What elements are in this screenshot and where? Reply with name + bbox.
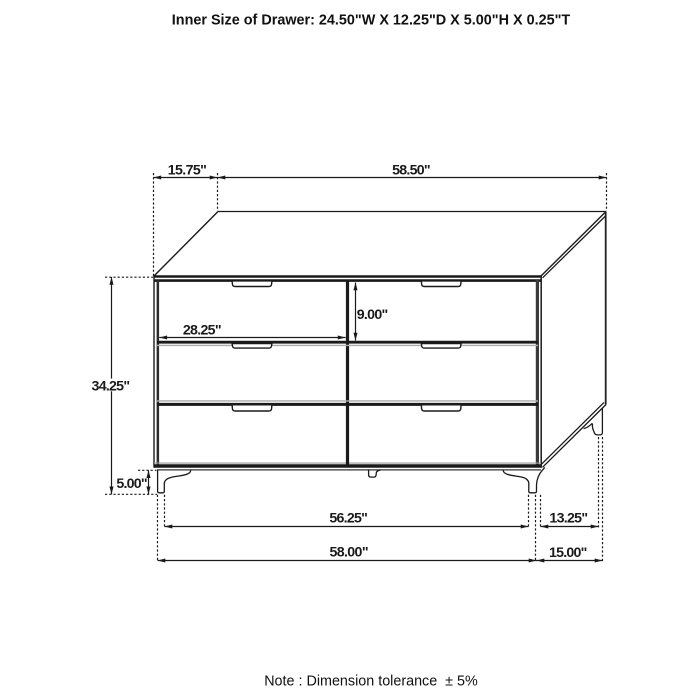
svg-text:9.00": 9.00" [357,307,389,323]
svg-text:15.75": 15.75" [168,162,207,178]
svg-text:34.25": 34.25" [92,378,131,394]
svg-text:28.25": 28.25" [183,322,222,338]
svg-text:Inner Size of Drawer: 24.50"W: Inner Size of Drawer: 24.50"W X 12.25"D … [172,13,571,29]
svg-text:56.25": 56.25" [329,511,367,527]
svg-text:58.00": 58.00" [329,545,368,561]
svg-text:58.50": 58.50" [392,162,431,178]
svg-text:13.25": 13.25" [549,510,588,526]
svg-text:5.00": 5.00" [116,476,147,492]
svg-text:15.00": 15.00" [549,545,587,561]
svg-text:Note : Dimension tolerance ±: Note : Dimension tolerance ± 5% [264,674,478,690]
